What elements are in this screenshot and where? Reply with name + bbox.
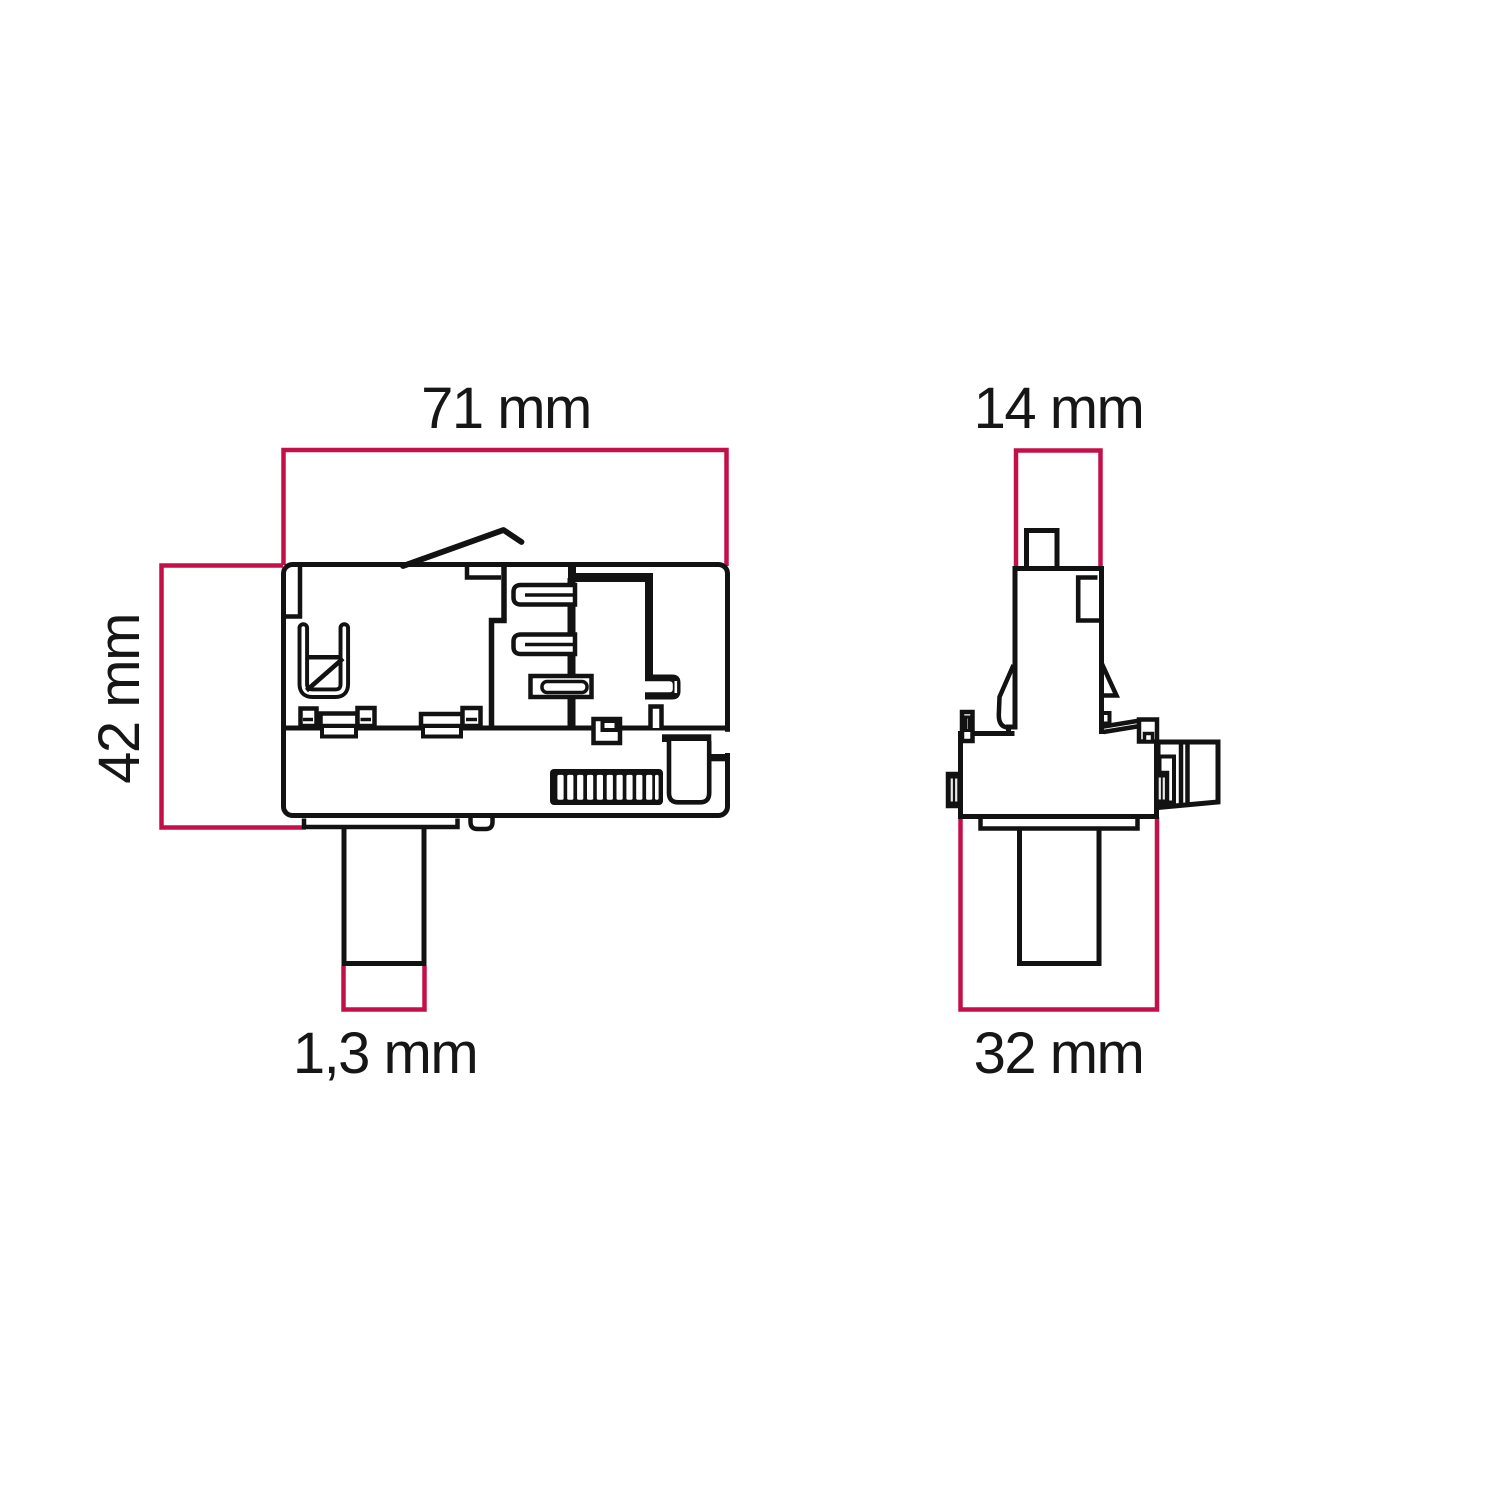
svg-text:42 mm: 42 mm [87, 614, 152, 784]
svg-text:1,3 mm: 1,3 mm [293, 1021, 477, 1086]
svg-text:14 mm: 14 mm [974, 376, 1144, 441]
svg-text:71 mm: 71 mm [421, 376, 591, 441]
svg-text:32 mm: 32 mm [974, 1021, 1144, 1086]
